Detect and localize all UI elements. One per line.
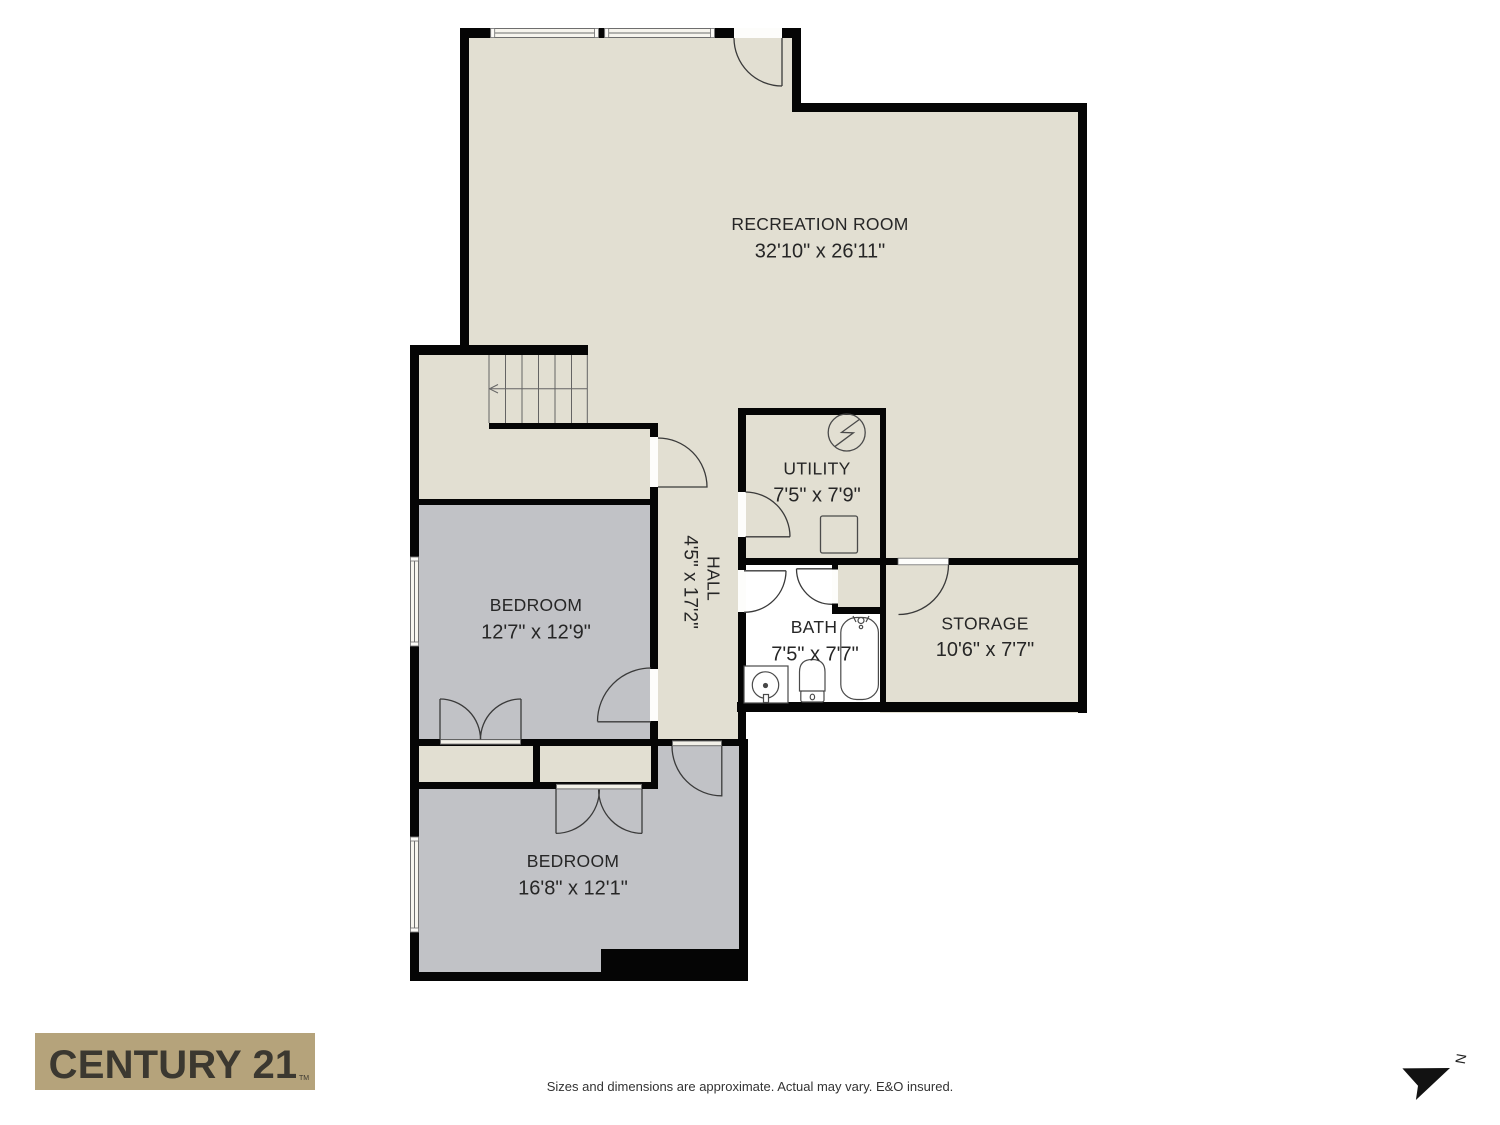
svg-text:HALL: HALL	[704, 556, 724, 601]
svg-text:4'5" x 17'2": 4'5" x 17'2"	[680, 535, 701, 629]
svg-text:BATH: BATH	[791, 617, 838, 637]
svg-text:STORAGE: STORAGE	[941, 614, 1028, 634]
svg-text:7'5" x 7'7": 7'5" x 7'7"	[771, 644, 858, 666]
svg-text:RECREATION ROOM: RECREATION ROOM	[731, 214, 908, 234]
svg-text:Sizes and dimensions are appro: Sizes and dimensions are approximate. Ac…	[547, 1079, 954, 1094]
svg-text:BEDROOM: BEDROOM	[490, 595, 583, 615]
svg-text:7'5" x 7'9": 7'5" x 7'9"	[773, 485, 860, 507]
svg-text:UTILITY: UTILITY	[783, 459, 850, 479]
svg-text:BEDROOM: BEDROOM	[527, 851, 620, 871]
svg-text:12'7" x 12'9": 12'7" x 12'9"	[481, 622, 591, 644]
svg-text:16'8" x 12'1": 16'8" x 12'1"	[518, 878, 628, 900]
svg-text:10'6" x 7'7": 10'6" x 7'7"	[936, 639, 1035, 661]
svg-text:32'10" x 26'11": 32'10" x 26'11"	[755, 241, 885, 263]
svg-text:CENTURY 21: CENTURY 21	[49, 1043, 298, 1087]
svg-text:TM: TM	[299, 1075, 309, 1082]
